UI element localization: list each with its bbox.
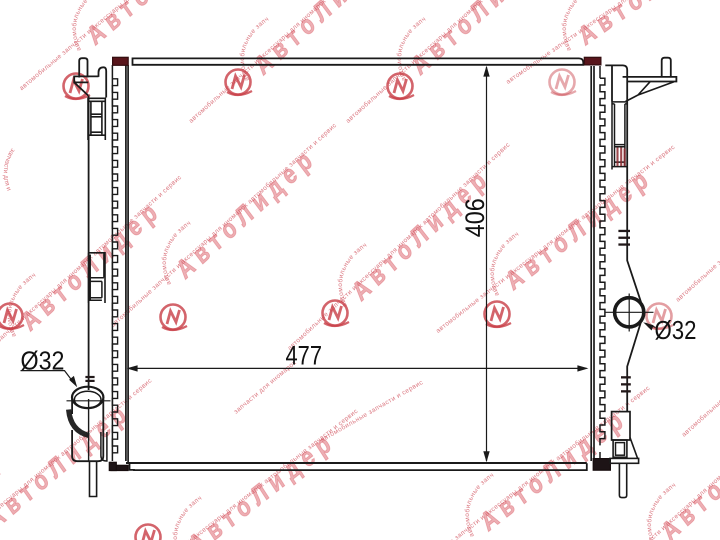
- svg-text:Ø32: Ø32: [655, 315, 697, 345]
- svg-text:Ø32: Ø32: [21, 345, 65, 375]
- svg-text:406: 406: [460, 198, 490, 237]
- svg-text:477: 477: [286, 341, 323, 371]
